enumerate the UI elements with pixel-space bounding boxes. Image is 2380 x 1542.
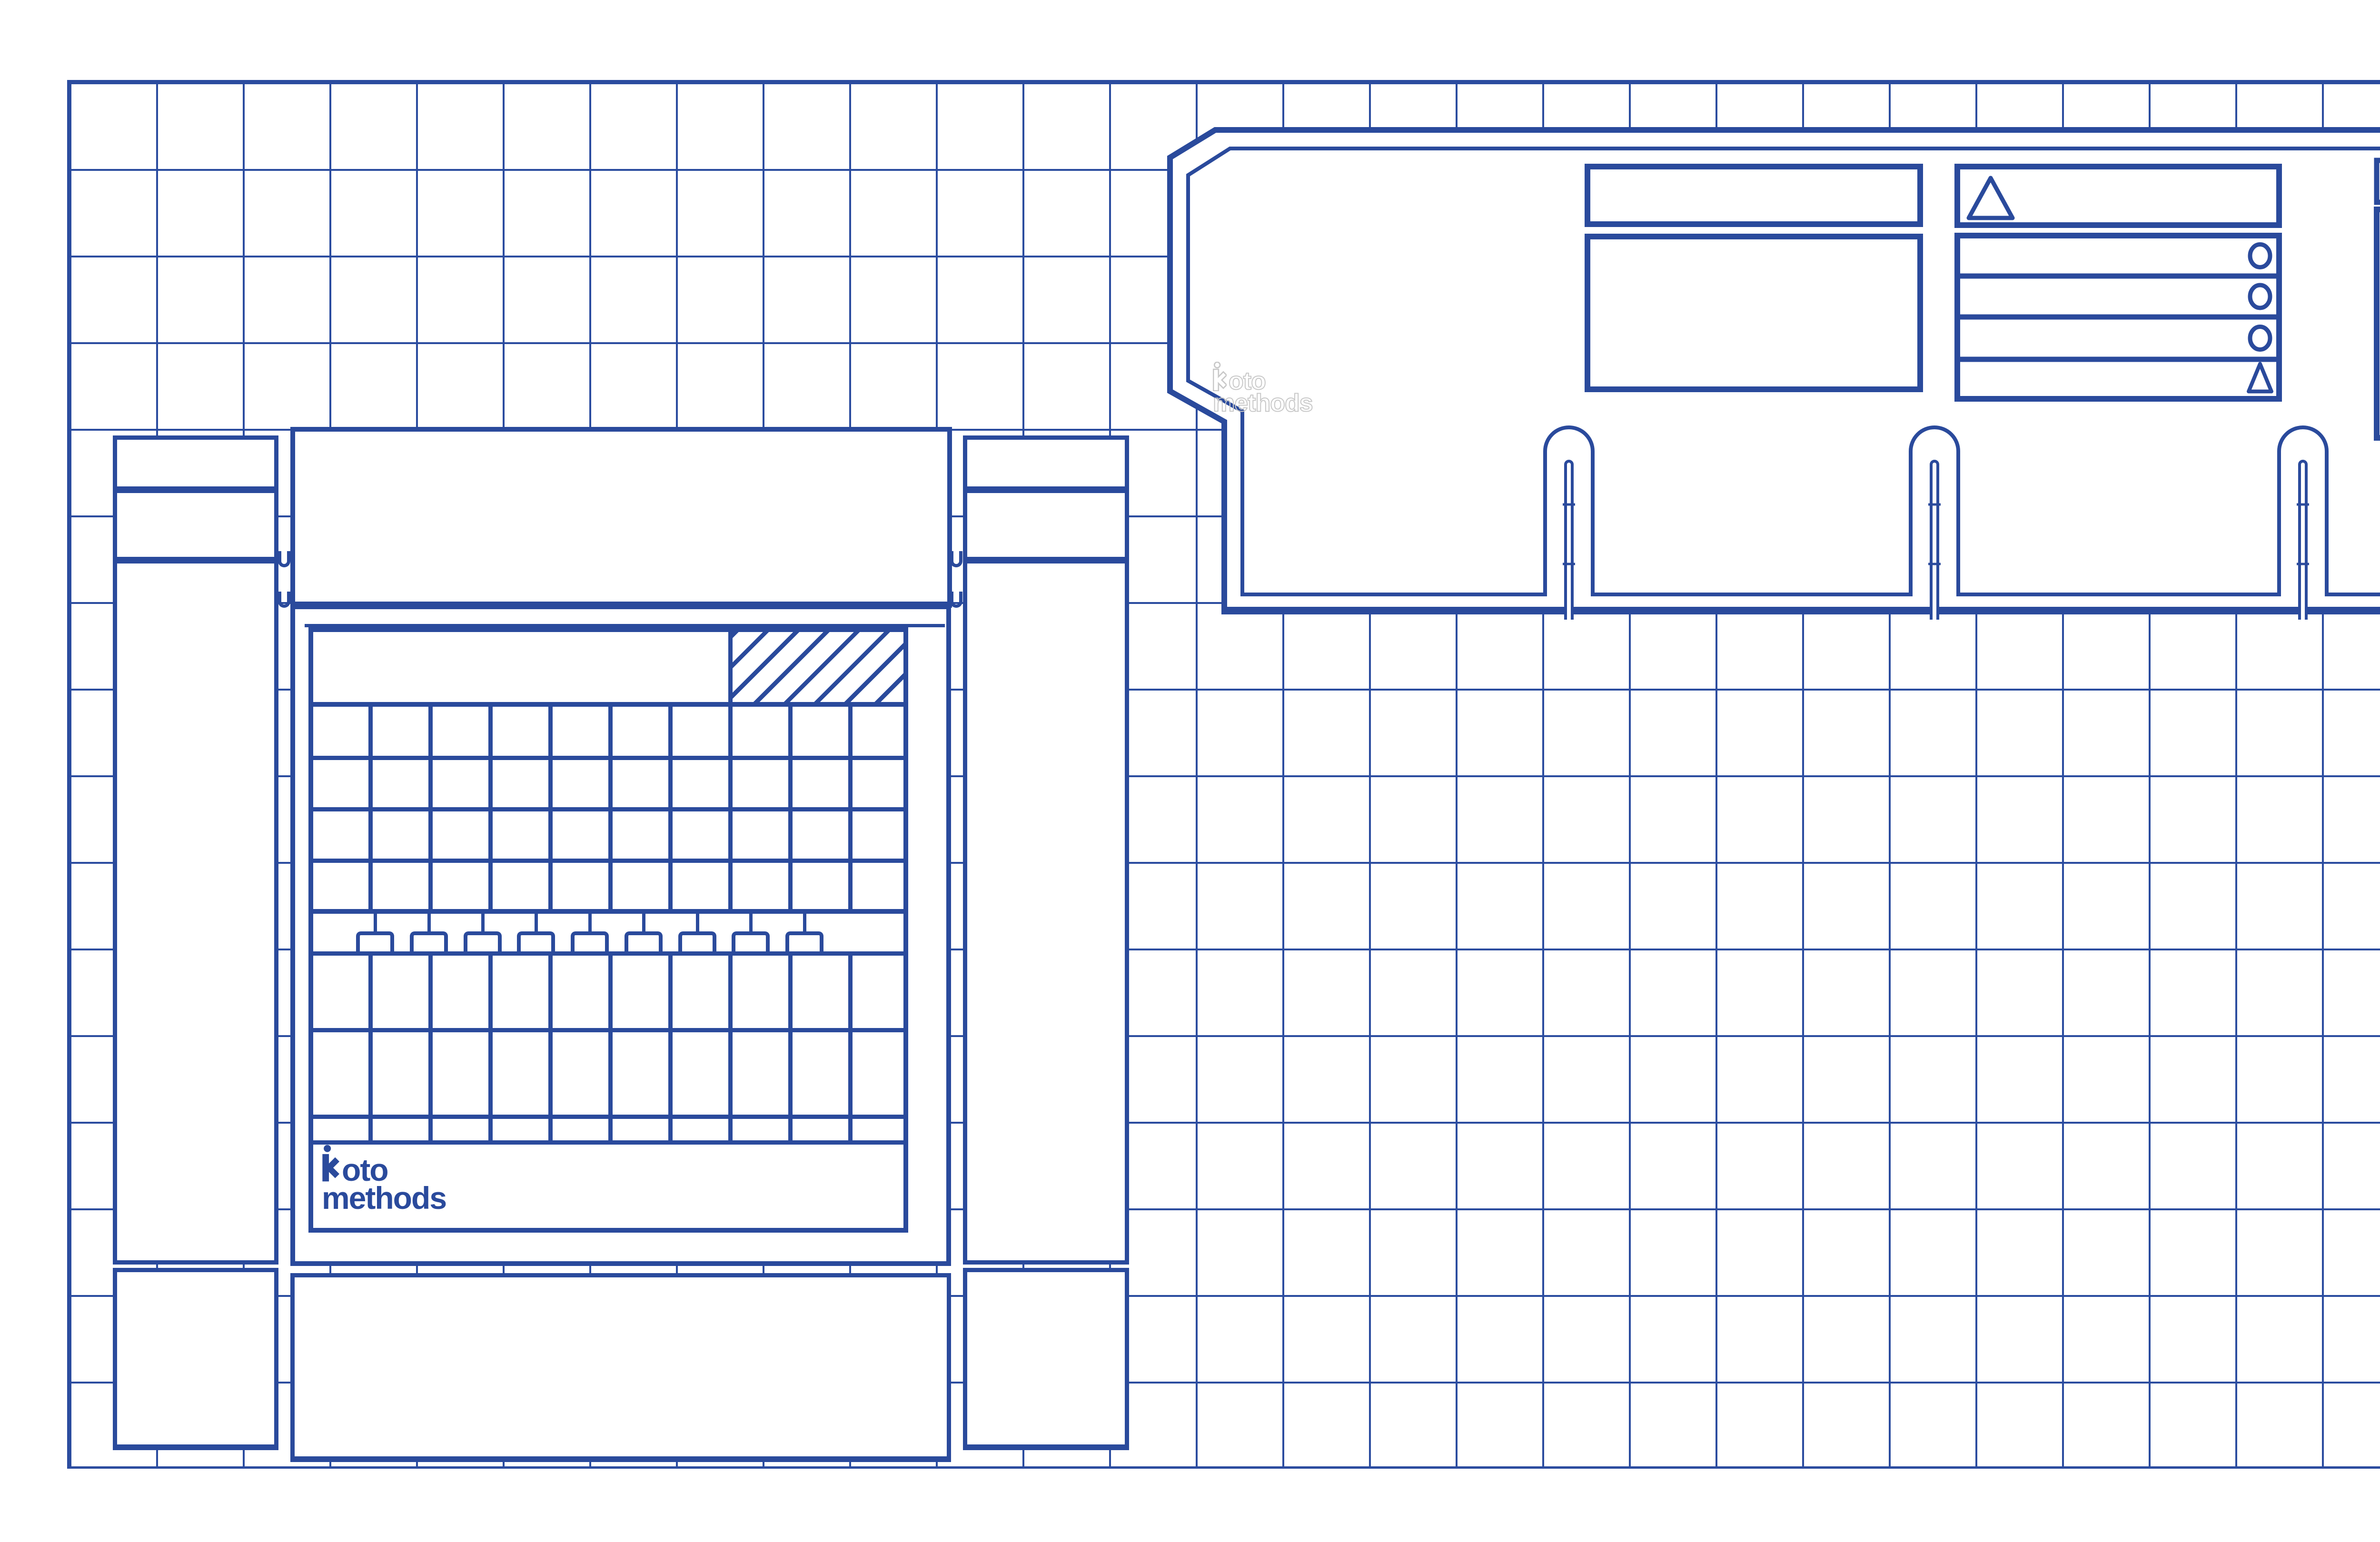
column-line <box>368 954 373 1143</box>
die-cut-hook <box>950 551 962 567</box>
right-column-flap-top <box>963 435 1129 491</box>
column-line <box>728 707 733 911</box>
column-line <box>548 954 553 1143</box>
left-column-flap-top <box>113 435 278 491</box>
column-line <box>488 954 493 1143</box>
column-line <box>608 954 613 1143</box>
column-line <box>848 707 853 911</box>
tab-stem <box>427 914 431 933</box>
brand-logo: oto methods <box>322 1144 446 1213</box>
watermark-text-line2: methods <box>1213 391 1313 415</box>
tab-stem <box>588 914 592 933</box>
top-flap <box>290 427 952 608</box>
tab-stem <box>374 914 377 933</box>
column-line <box>548 707 553 911</box>
tab-box <box>356 931 394 955</box>
column-line <box>668 707 673 911</box>
column-line <box>488 707 493 911</box>
die-cut-hook <box>278 551 290 567</box>
die-cut-hook <box>278 592 290 608</box>
tab-box <box>625 931 663 955</box>
side-box <box>2377 209 2380 438</box>
watermark-logo: oto methods <box>1213 362 1313 415</box>
tab-box <box>785 931 823 955</box>
logo-text-line2: methods <box>322 1183 446 1213</box>
right-column-flap-middle <box>963 489 1129 561</box>
column-line <box>668 954 673 1143</box>
bottom-flap-left <box>113 1268 278 1450</box>
tray-template <box>1157 114 2380 642</box>
blueprint-canvas: oto methods oto <box>0 0 2380 1542</box>
figure-person-icon <box>322 1144 339 1182</box>
tab-box <box>517 931 555 955</box>
column-line <box>608 707 613 911</box>
tab-box <box>410 931 448 955</box>
right-column-flap-tall <box>963 559 1129 1265</box>
tab-stem <box>481 914 485 933</box>
column-line <box>368 707 373 911</box>
crease-line <box>305 624 945 627</box>
tab-stem <box>696 914 699 933</box>
header-bar <box>1587 167 1920 224</box>
logo-text-line1: oto <box>342 1157 388 1182</box>
hatch-area <box>728 632 903 703</box>
side-bar <box>2377 160 2380 202</box>
column-line <box>788 707 793 911</box>
column-line <box>848 954 853 1143</box>
column-line <box>428 954 433 1143</box>
header-rule <box>310 702 906 707</box>
watermark-text-line1: oto <box>1229 371 1266 391</box>
tab-box <box>464 931 502 955</box>
bottom-flap-right <box>963 1268 1129 1450</box>
left-column-flap-tall <box>113 559 278 1265</box>
tab-box <box>732 931 770 955</box>
column-line <box>788 954 793 1143</box>
tab-stem <box>642 914 645 933</box>
display-box <box>1587 237 1920 389</box>
tab-stem <box>535 914 538 933</box>
tab-stem <box>803 914 806 933</box>
tab-box <box>678 931 716 955</box>
column-line <box>728 954 733 1143</box>
tab-box <box>571 931 609 955</box>
left-column-flap-middle <box>113 489 278 561</box>
tab-stem <box>749 914 753 933</box>
bottom-flap-center <box>290 1273 951 1462</box>
column-line <box>428 707 433 911</box>
die-cut-hook <box>950 592 962 608</box>
figure-person-icon-ghost <box>1213 362 1227 391</box>
